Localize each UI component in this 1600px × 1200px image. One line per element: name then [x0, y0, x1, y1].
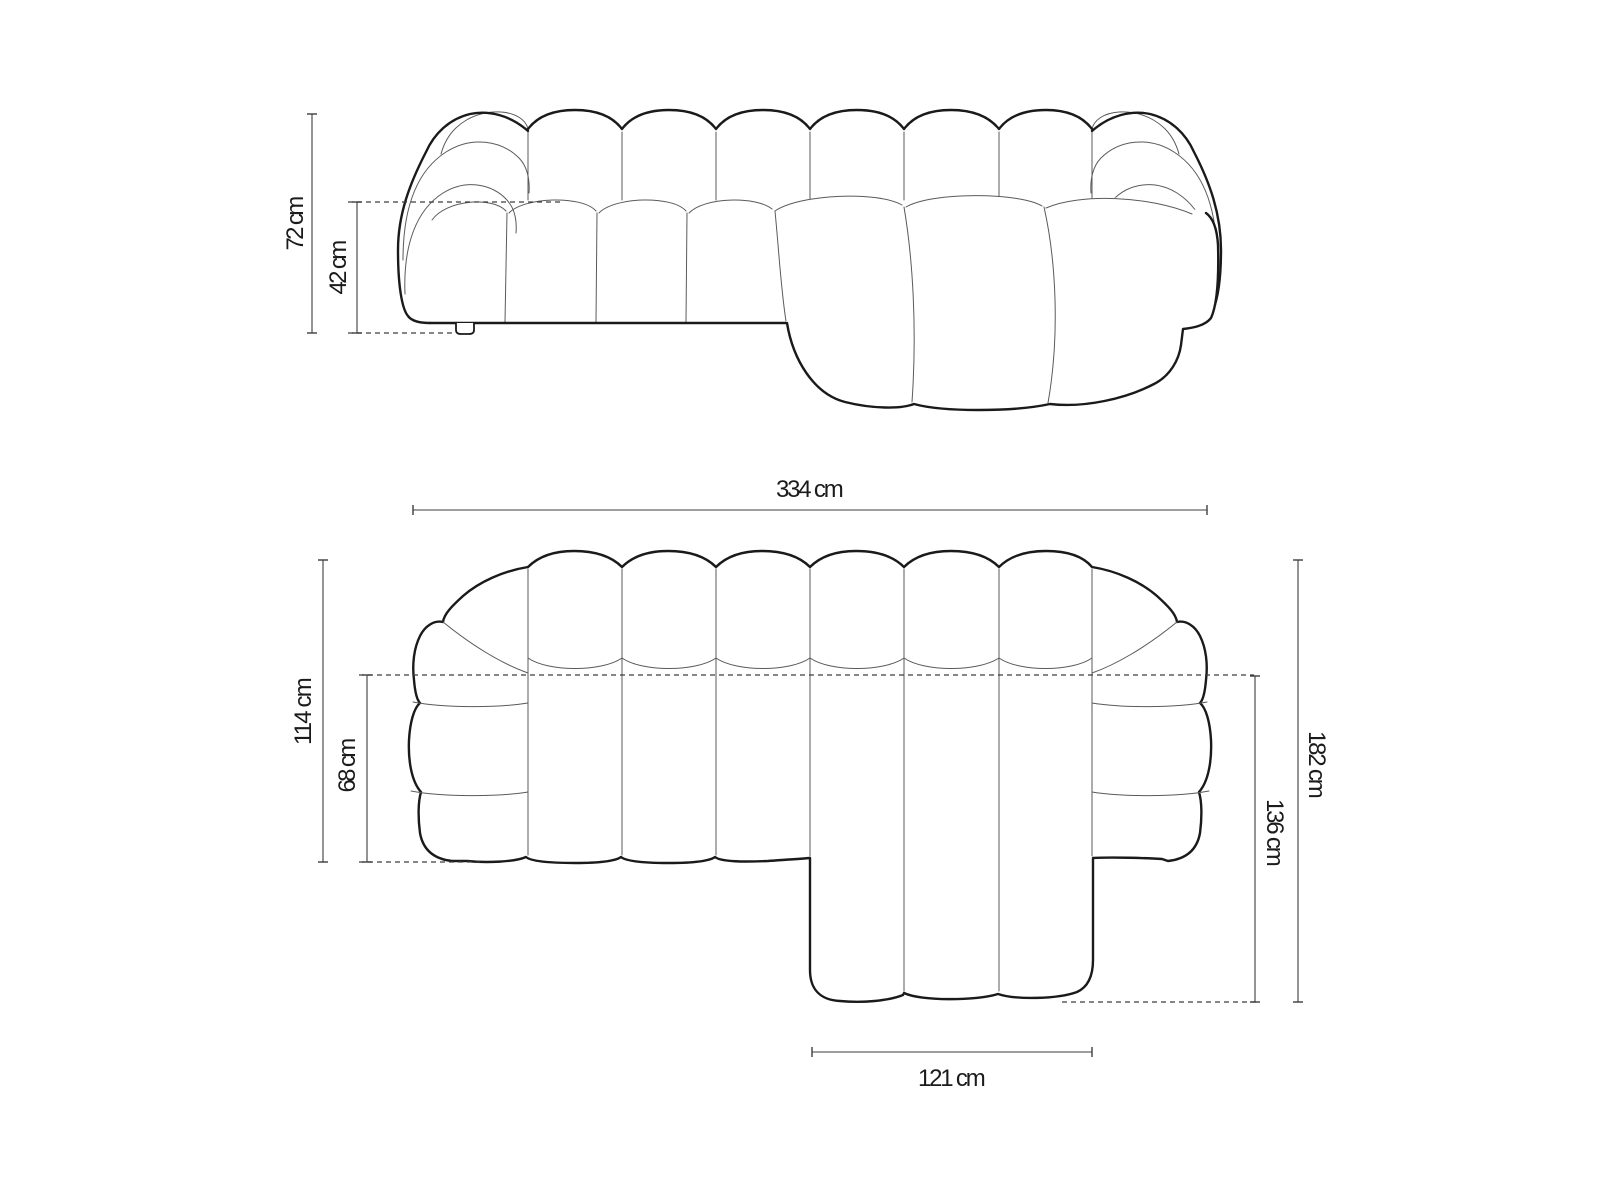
front-chaise-fill [775, 196, 1218, 410]
dim-body-depth: 114 cm [290, 560, 328, 862]
front-backrest-dividers [528, 132, 1092, 204]
dim-chaise-width: 121 cm [812, 1047, 1092, 1092]
dim-chaise-depth-label: 136 cm [1261, 799, 1288, 867]
dim-total-width: 334 cm [413, 476, 1207, 515]
dim-total-height-label: 72 cm [282, 196, 309, 251]
dim-seat-depth-label: 68 cm [334, 738, 361, 793]
sofa-dimension-diagram: 72 cm 42 cm 334 cm 114 cm 68 [0, 0, 1600, 1200]
dim-chaise-width-label: 121 cm [918, 1065, 986, 1092]
dim-body-depth-label: 114 cm [290, 677, 317, 745]
dim-total-height: 72 cm [282, 114, 317, 333]
front-foot-left [456, 323, 474, 334]
front-backrest-bubbles [528, 110, 1092, 129]
dim-seat-height: 42 cm [325, 202, 362, 333]
front-view [398, 110, 1221, 410]
dim-total-width-label: 334 cm [776, 476, 844, 503]
dim-total-depth-label: 182 cm [1303, 731, 1330, 799]
dim-total-depth: 182 cm [1293, 560, 1330, 1002]
front-seat-cushions [432, 200, 772, 322]
front-arm-left-seam-2 [405, 185, 516, 294]
dim-chaise-depth: 136 cm [1250, 676, 1288, 1002]
diagram-canvas: 72 cm 42 cm 334 cm 114 cm 68 [0, 0, 1600, 1200]
top-view [409, 551, 1211, 1002]
dim-seat-height-label: 42 cm [325, 240, 352, 295]
dim-seat-depth: 68 cm [334, 675, 372, 862]
